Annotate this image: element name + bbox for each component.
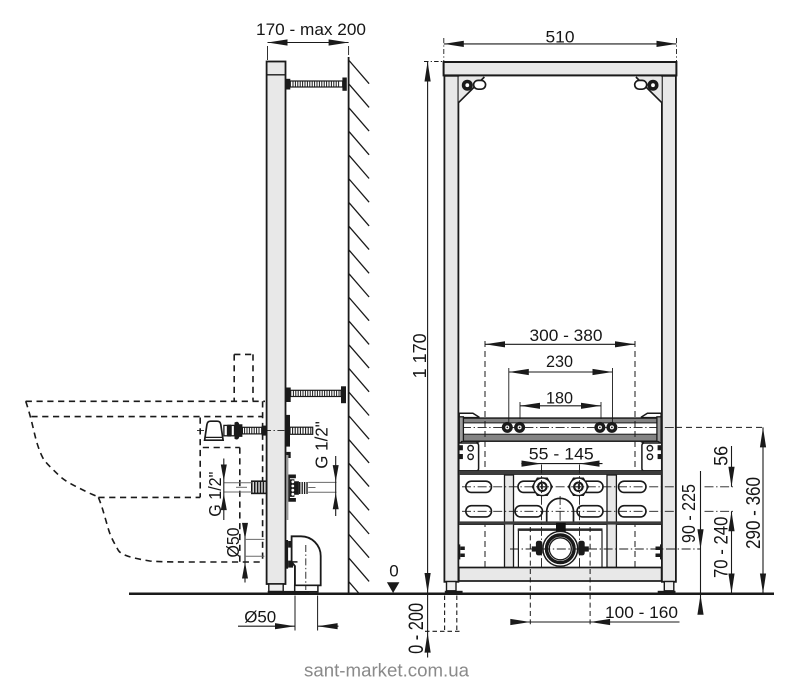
svg-text:sant-market.com.ua: sant-market.com.ua (304, 659, 470, 680)
svg-text:300 - 380: 300 - 380 (530, 326, 603, 345)
svg-text:90 - 225: 90 - 225 (679, 484, 699, 543)
svg-text:70 - 240: 70 - 240 (711, 516, 733, 578)
svg-text:290 - 360: 290 - 360 (743, 477, 765, 549)
svg-text:180: 180 (546, 389, 573, 408)
svg-text:230: 230 (546, 352, 573, 371)
svg-text:55 - 145: 55 - 145 (529, 445, 594, 464)
svg-text:56: 56 (711, 446, 733, 466)
svg-text:G 1/2": G 1/2" (205, 472, 225, 517)
svg-text:Ø50: Ø50 (223, 527, 243, 557)
svg-text:G 1/2": G 1/2" (312, 421, 332, 469)
svg-text:0: 0 (389, 562, 398, 581)
svg-text:1 170: 1 170 (410, 333, 430, 378)
svg-text:100 - 160: 100 - 160 (605, 603, 678, 622)
svg-text:0 - 200: 0 - 200 (405, 603, 428, 654)
svg-text:170 - max 200: 170 - max 200 (256, 20, 366, 39)
svg-text:Ø50: Ø50 (244, 608, 276, 627)
